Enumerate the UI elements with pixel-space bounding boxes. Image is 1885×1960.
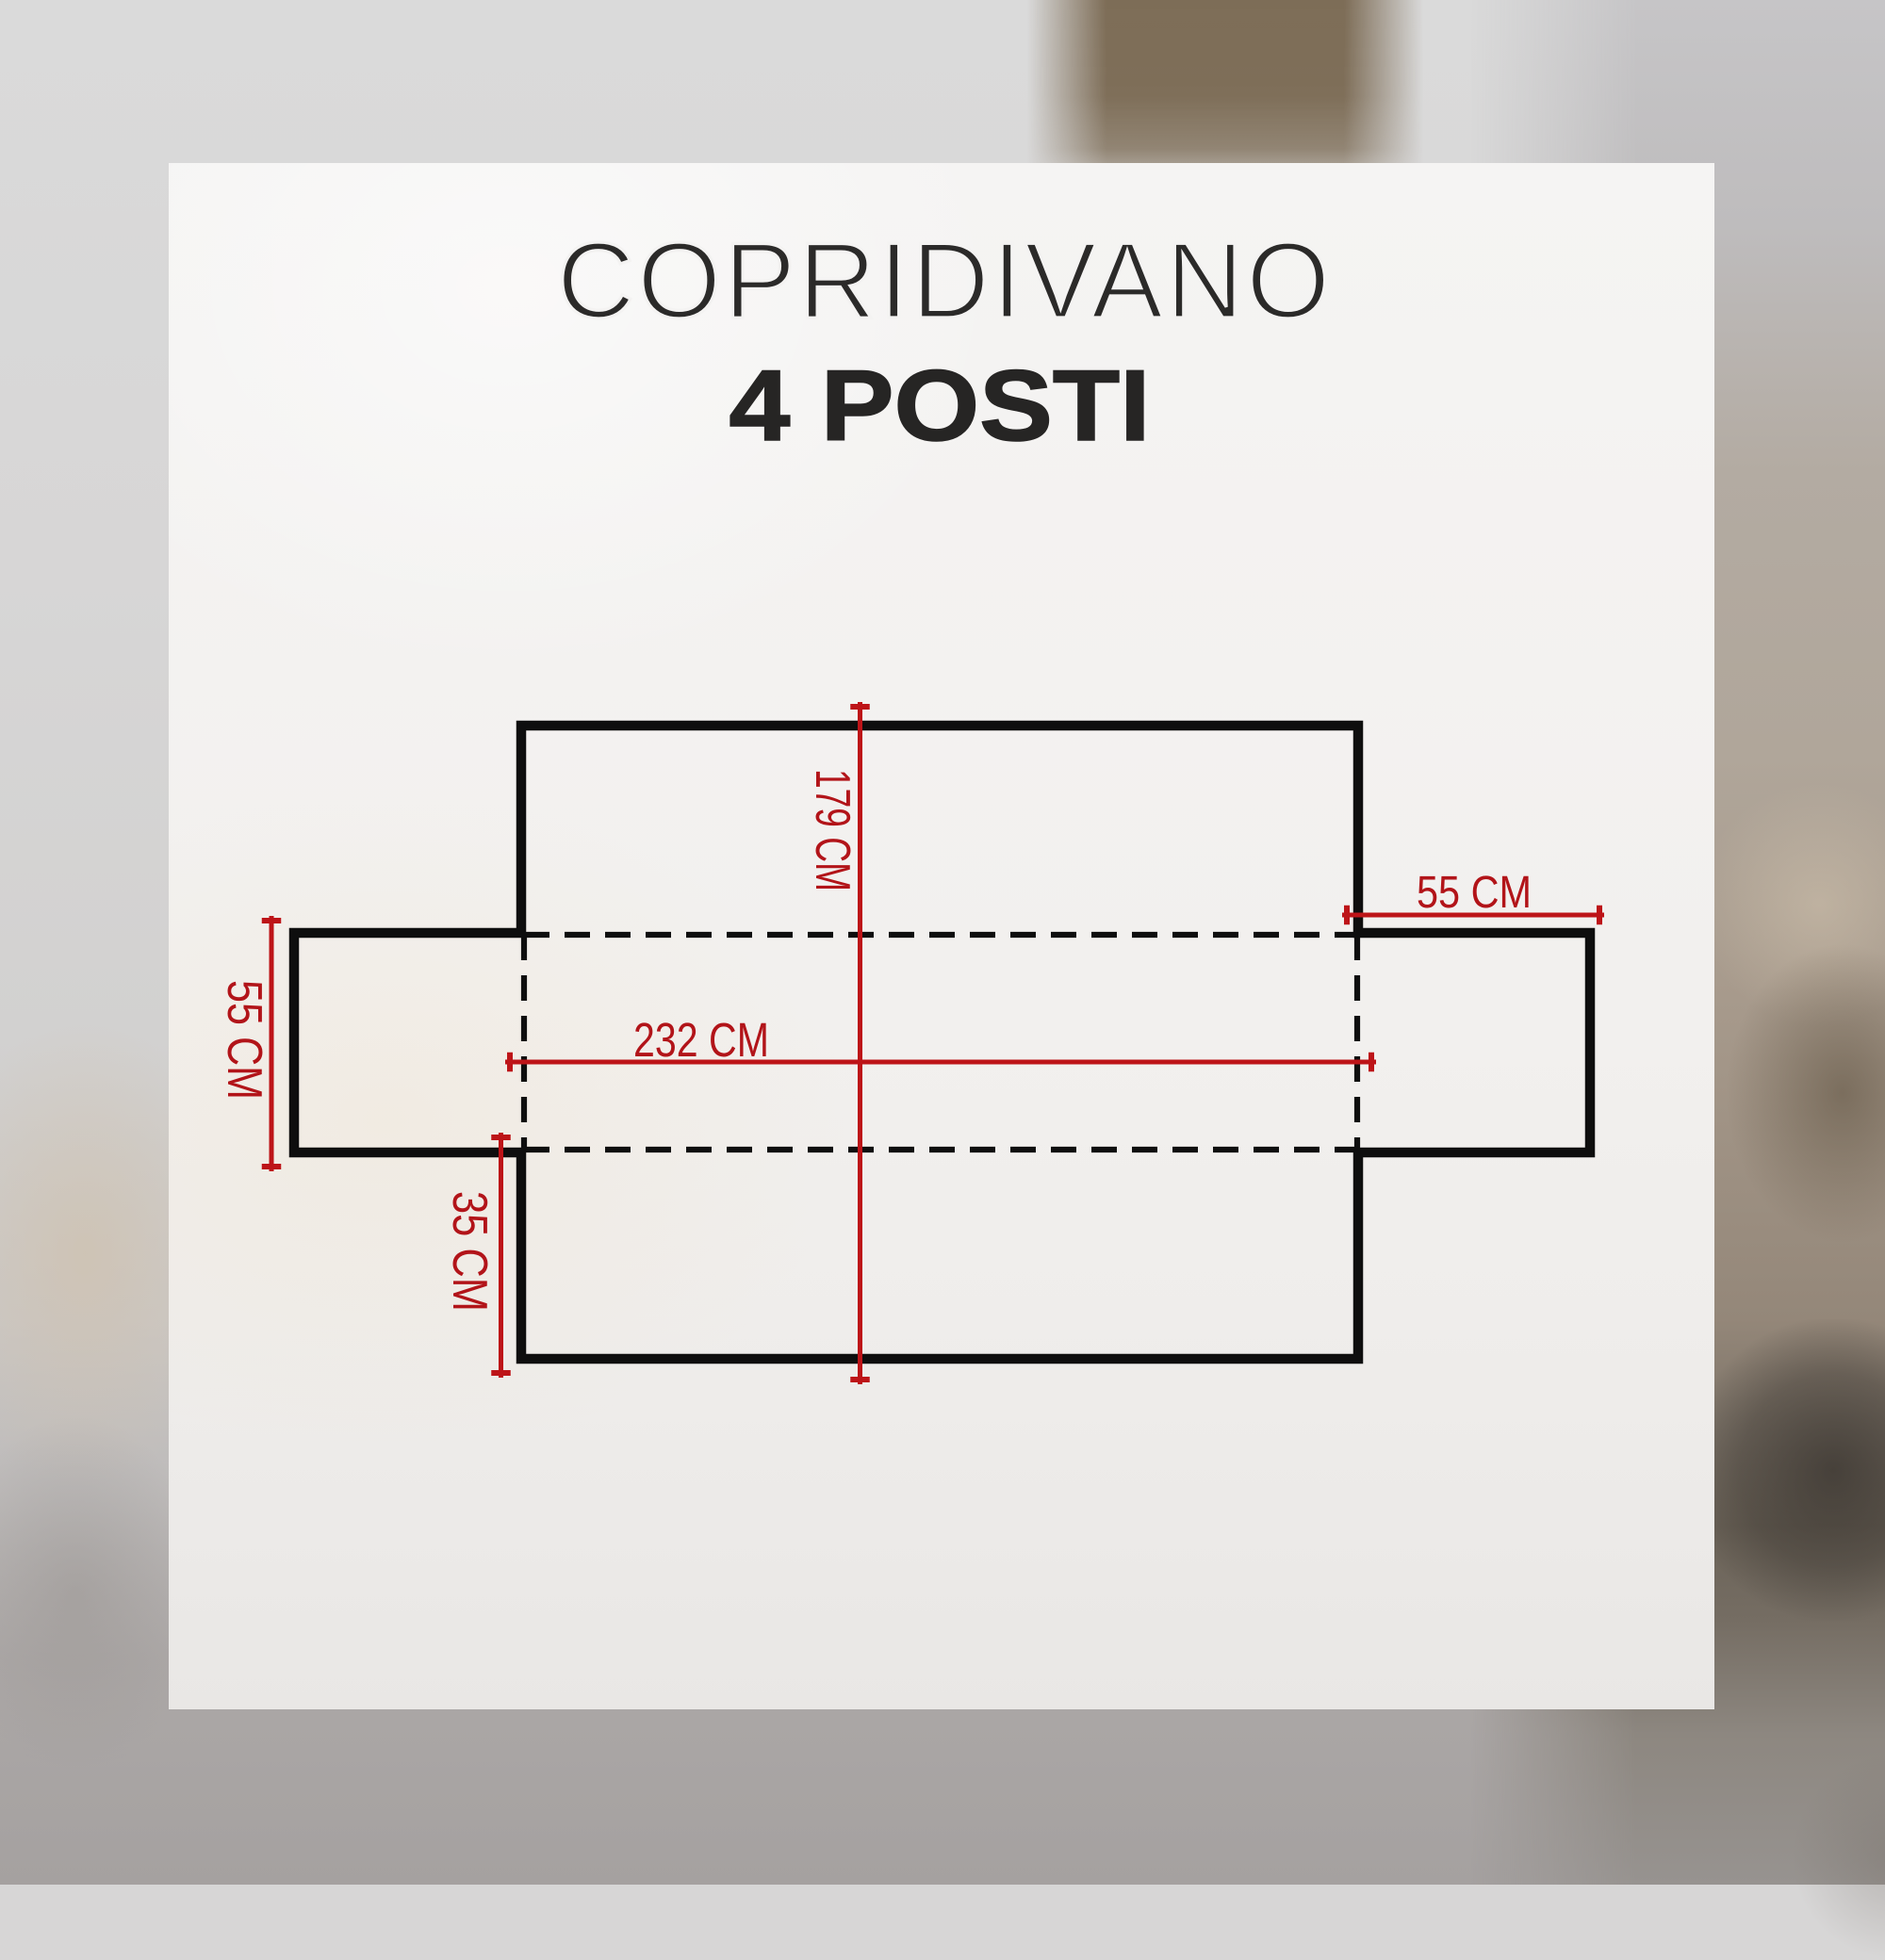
svg-text:55 CM: 55 CM — [217, 980, 271, 1100]
svg-text:35 CM: 35 CM — [442, 1191, 497, 1312]
svg-text:COPRIDIVANO: COPRIDIVANO — [557, 221, 1330, 341]
svg-text:232 CM: 232 CM — [633, 1013, 769, 1067]
svg-text:4 POSTI: 4 POSTI — [729, 349, 1151, 462]
svg-text:55 CM: 55 CM — [1417, 868, 1532, 918]
svg-text:179 CM: 179 CM — [805, 769, 860, 891]
